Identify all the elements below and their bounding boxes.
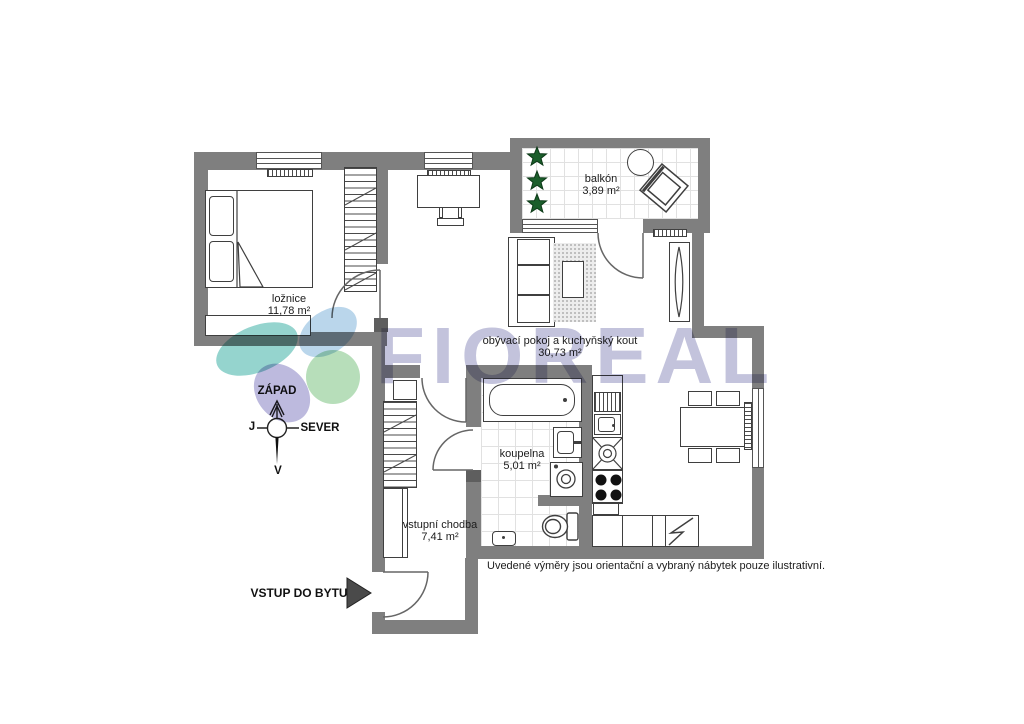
bedroom-window <box>256 152 322 169</box>
washing-machine <box>550 462 583 497</box>
bathroom-area: 5,01 m² <box>500 461 545 473</box>
wall-right-upper <box>692 219 704 338</box>
balcony-name: balkón <box>582 174 619 186</box>
bedroom-label: ložnice 11,78 m² <box>268 294 311 317</box>
desk-chair-leg <box>458 207 462 218</box>
kitchen-small-unit <box>593 503 619 515</box>
wall-bottom <box>466 546 764 559</box>
balcony-label: balkón 3,89 m² <box>582 174 619 197</box>
floor-plan: ložnice 11,78 m² balkón 3,89 m² obývací … <box>0 0 1024 724</box>
compass-west-label: ZÁPAD <box>258 385 297 397</box>
bathroom-sink-basin <box>557 431 574 454</box>
dining-window <box>752 388 764 468</box>
kitchen-faucet <box>612 424 615 427</box>
desk-chair-seat <box>437 218 464 226</box>
bedroom-name: ložnice <box>268 294 311 306</box>
wall-balcony-right <box>698 138 710 233</box>
compass-south-label: J <box>249 421 255 433</box>
entrance-arrow-icon <box>347 578 371 608</box>
sofa-cushion <box>517 295 550 323</box>
wall-bathroom-left-lower <box>466 470 481 558</box>
living-name: obývací pokoj a kuchyňský kout <box>483 336 638 348</box>
wall-balcony-bottom-left <box>510 219 522 233</box>
dresser <box>205 315 311 336</box>
hall-wardrobe <box>383 401 417 488</box>
hallway-label: vstupní chodba 7,41 m² <box>403 520 478 543</box>
bedroom-wardrobe <box>344 167 377 292</box>
wall-bathroom-top <box>466 365 592 378</box>
hallway-area: 7,41 m² <box>403 532 478 544</box>
bedroom-area: 11,78 m² <box>268 306 311 318</box>
balcony-wall-radiator <box>653 229 687 237</box>
dining-table <box>680 407 745 447</box>
living-cabinet <box>669 242 690 322</box>
counter-divider <box>652 516 653 546</box>
living-window <box>424 152 473 169</box>
disclaimer-note: Uvedené výměry jsou orientační a vybraný… <box>487 560 825 572</box>
bathroom-label: koupelna 5,01 m² <box>500 449 545 472</box>
pillow <box>209 196 234 236</box>
dining-chair <box>688 448 712 463</box>
coffee-table <box>562 261 584 298</box>
sofa <box>508 237 555 327</box>
wall-hall-bottom <box>372 620 478 634</box>
wall-living-hall <box>385 365 420 378</box>
desk <box>417 175 480 208</box>
cabinet-handle <box>502 536 505 539</box>
desk-chair-leg <box>439 207 443 218</box>
wall-bathroom-left-upper <box>466 378 481 427</box>
wall-right-lower-a <box>752 326 764 388</box>
pillow <box>209 241 234 282</box>
wall-hall-right <box>465 558 478 634</box>
dining-chair <box>688 391 712 406</box>
hallway-name: vstupní chodba <box>403 520 478 532</box>
dining-chair <box>716 448 740 463</box>
fridge <box>665 515 699 547</box>
dining-chair <box>716 391 740 406</box>
compass-rose <box>257 401 299 464</box>
kitchen-hob-unit <box>592 437 623 470</box>
sofa-cushion <box>517 265 550 295</box>
sofa-cushion <box>517 239 550 265</box>
wall-balcony-top <box>510 138 710 148</box>
bathroom-sink-tap <box>573 441 581 444</box>
bedroom-door-jamb <box>374 318 388 332</box>
living-area: 30,73 m² <box>483 348 638 360</box>
bathtub-drain <box>563 398 567 402</box>
compass-east-label: V <box>274 465 282 477</box>
bedroom-radiator <box>267 169 313 177</box>
bathroom-name: koupelna <box>500 449 545 461</box>
balcony-area: 3,89 m² <box>582 186 619 198</box>
bathroom-door <box>433 430 473 470</box>
wall-right-lower-b <box>752 468 764 559</box>
dish-rack <box>594 392 621 412</box>
balcony-table <box>627 149 654 176</box>
counter-divider <box>622 516 623 546</box>
hall-door <box>422 378 466 422</box>
dining-radiator <box>744 402 752 450</box>
logo-petal-green <box>306 350 360 404</box>
balcony-door <box>598 233 643 278</box>
compass-north-label: SEVER <box>301 422 340 434</box>
kitchen-counter-bottom <box>592 515 666 547</box>
entry-door <box>383 572 428 617</box>
entrance-label: VSTUP DO BYTU <box>250 586 347 600</box>
balcony-window <box>522 219 598 233</box>
hall-shelf <box>393 380 417 400</box>
bathroom-door-jamb <box>466 470 481 482</box>
living-label: obývací pokoj a kuchyňský kout 30,73 m² <box>483 336 638 359</box>
kitchen-stove-unit <box>592 470 623 503</box>
